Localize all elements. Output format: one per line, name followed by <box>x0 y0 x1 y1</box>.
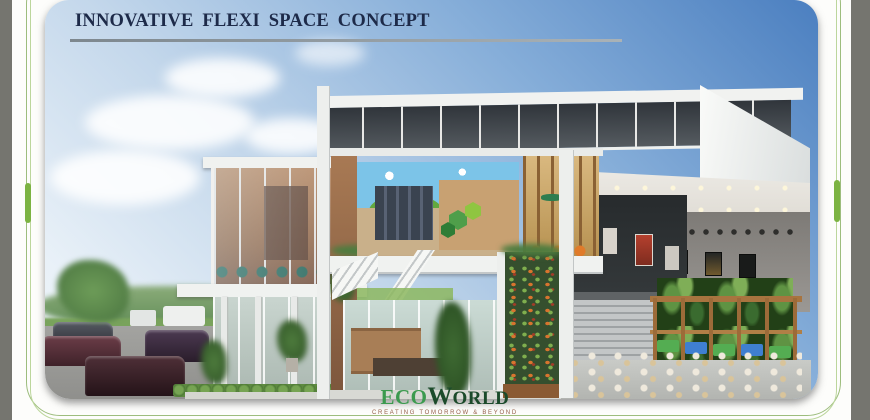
poster <box>665 246 679 270</box>
dining-tables <box>560 352 802 398</box>
entrance-glass-wall <box>213 297 331 385</box>
potted-plant <box>201 340 227 384</box>
bench-cushion <box>657 340 679 352</box>
logo-tagline: CREATING TOMORROW & BEYOND <box>372 410 518 416</box>
entrance-column <box>255 297 261 387</box>
screen-edge-right <box>851 0 870 420</box>
pergola-beam <box>650 330 802 334</box>
section-frame-column <box>317 86 330 399</box>
pavilion-roof-slab <box>203 157 335 168</box>
logo-text-orld: ORLD <box>452 388 509 409</box>
kids-room <box>357 162 519 260</box>
title-underline <box>70 39 622 42</box>
white-van <box>163 306 205 326</box>
ecoworld-logo-wordmark: ECOWORLD <box>372 384 518 409</box>
slide-image: INNOVATIVE FLEXI SPACE CONCEPT <box>45 0 818 399</box>
green-accent-right <box>834 180 840 222</box>
dark-curtains <box>375 186 433 240</box>
cloud <box>85 95 255 150</box>
logo-text-eco: ECO <box>380 385 427 409</box>
plant-pot <box>286 358 298 372</box>
poster <box>603 228 617 254</box>
living-green-wall <box>505 252 561 384</box>
artwork-frame <box>705 252 722 276</box>
screen-edge-left <box>0 0 12 420</box>
white-van <box>130 310 156 326</box>
green-accent-left <box>25 183 31 223</box>
artwork-frame <box>739 254 756 278</box>
cloud <box>165 58 280 98</box>
cloud <box>295 40 365 66</box>
tall-plant <box>435 302 471 396</box>
cloud <box>50 150 200 205</box>
page-title: INNOVATIVE FLEXI SPACE CONCEPT <box>75 11 430 32</box>
storefront-glass <box>343 300 503 396</box>
pergola-beam <box>650 296 802 302</box>
white-post <box>497 252 505 398</box>
poster <box>635 234 653 266</box>
car <box>85 356 185 396</box>
section-frame-column <box>559 150 574 398</box>
logo-text-w: W <box>427 383 452 410</box>
ecoworld-logo: ECOWORLD CREATING TOMORROW & BEYOND <box>372 384 518 416</box>
